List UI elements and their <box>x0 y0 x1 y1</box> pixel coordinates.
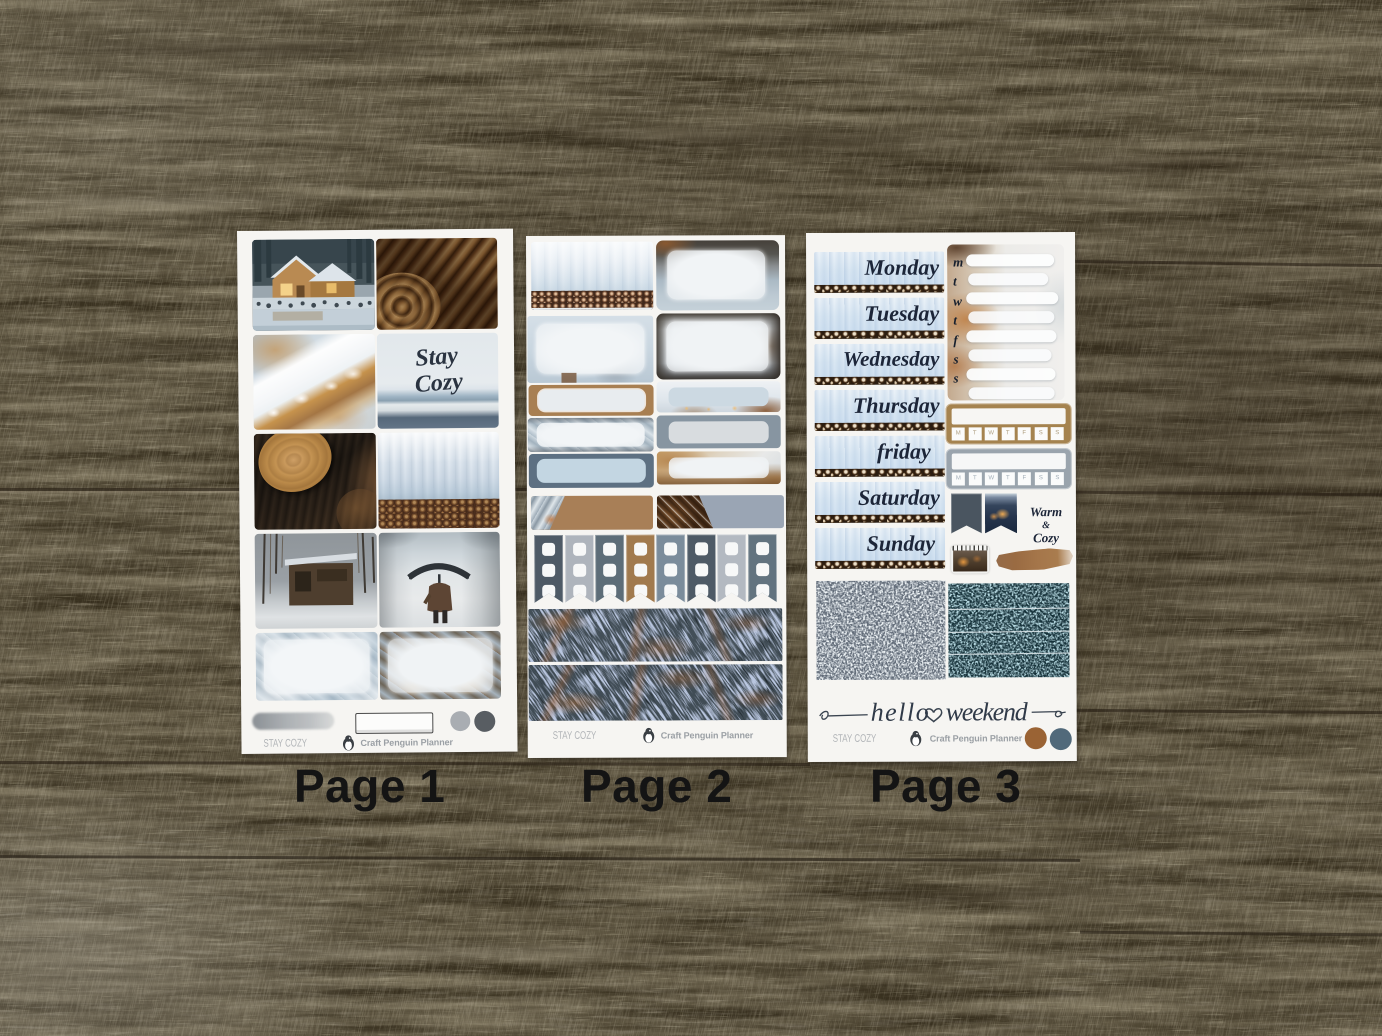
svg-text:Cozy: Cozy <box>414 368 464 398</box>
svg-text:Stay: Stay <box>414 343 459 372</box>
svg-text:hello: hello <box>871 698 929 727</box>
svg-text:weekend: weekend <box>946 697 1029 726</box>
